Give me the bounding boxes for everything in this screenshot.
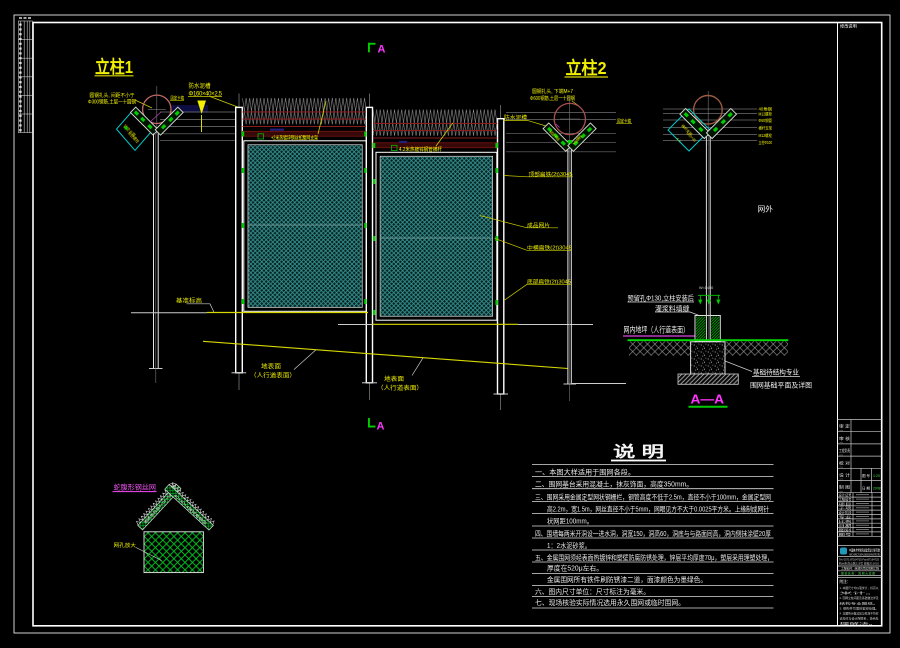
svg-text:+2米热镀锌钢丝蛇腹网支架: +2米热镀锌钢丝蛇腹网支架 xyxy=(271,133,319,141)
svg-text:附注：: 附注： xyxy=(840,579,851,584)
svg-text:厚度在520μ左右。: 厚度在520μ左右。 xyxy=(547,564,603,573)
svg-text:工程名称：西湖风景区围网工程: 工程名称：西湖风景区围网工程 xyxy=(841,566,879,571)
svg-text:Φ60钢管: Φ60钢管 xyxy=(759,117,773,124)
svg-text:灌浆料填缝: 灌浆料填缝 xyxy=(655,304,690,313)
svg-text:（人行道表面）: （人行道表面） xyxy=(377,384,423,392)
svg-text:预留孔Φ130,立柱安装后: 预留孔Φ130,立柱安装后 xyxy=(628,294,695,303)
svg-text:A: A xyxy=(378,44,386,56)
svg-text:图别: 图别 xyxy=(839,527,852,532)
svg-text:图纸名称：围网大样图: 图纸名称：围网大样图 xyxy=(841,571,875,576)
svg-text:审 核: 审 核 xyxy=(839,435,850,441)
svg-text:工程负责: 工程负责 xyxy=(839,447,850,453)
svg-text:图号: 图号 xyxy=(839,531,852,536)
svg-text:日期: 日期 xyxy=(862,486,870,491)
svg-text:立柱Φ100: 立柱Φ100 xyxy=(759,139,773,146)
svg-text:二、围网基台采用混凝土，抹灰饰面，高度350mm。: 二、围网基台采用混凝土，抹灰饰面，高度350mm。 xyxy=(535,479,693,488)
svg-text:四、围墙每两米开洞设一进水洞，洞宽150，洞高60，洞底与与: 四、围墙每两米开洞设一进水洞，洞宽150，洞高60，洞底与与路面同高，洞内侧抹涂… xyxy=(535,529,771,538)
svg-text:杭州市南山路218号 邮编310002: 杭州市南山路218号 邮编310002 xyxy=(839,561,880,565)
svg-text:（人行道表面）: （人行道表面） xyxy=(250,371,296,379)
svg-text:六、图内尺寸单位：尺寸标注为毫米。: 六、图内尺寸单位：尺寸标注为毫米。 xyxy=(535,587,650,596)
svg-text:请及时与设计院联系，协商处: 请及时与设计院联系，协商处 xyxy=(840,616,879,621)
svg-text:网孔放大: 网孔放大 xyxy=(114,542,137,549)
svg-text:专业: 专业 xyxy=(839,514,852,519)
svg-text:高2.2m，宽1.5m，网丝直径不小于5mm，网眼见方不大于: 高2.2m，宽1.5m，网丝直径不小于5mm，网眼见方不大于0.0025平方米。… xyxy=(547,504,769,513)
svg-text:日期: 日期 xyxy=(839,523,852,528)
svg-text:M12螺栓: M12螺栓 xyxy=(759,132,773,139)
svg-text:圆钢扎头, 间距不小于: 圆钢扎头, 间距不小于 xyxy=(90,91,135,99)
svg-text:M12螺栓: M12螺栓 xyxy=(759,111,773,118)
svg-text:Φ600钢筋,土层一十圆钢: Φ600钢筋,土层一十圆钢 xyxy=(530,94,575,102)
svg-text:3. 钢构件均需热镀锌处理。: 3. 钢构件均需热镀锌处理。 xyxy=(840,605,879,610)
svg-text:设 计: 设 计 xyxy=(839,472,850,478)
svg-text:五、金属围网须经表面热镀锌和塑壁防腐防锈处理，锌层平均厚度7: 五、金属围网须经表面热镀锌和塑壁防腐防锈处理，锌层平均厚度70μ，塑层采用理塑处… xyxy=(535,553,773,562)
svg-text:状网距100mm。: 状网距100mm。 xyxy=(547,516,593,525)
svg-text:A—A: A—A xyxy=(691,393,725,407)
svg-text:修改说明: 修改说明 xyxy=(840,23,857,30)
svg-text:防水泥槽: 防水泥槽 xyxy=(189,82,211,90)
svg-text:比例: 比例 xyxy=(839,518,852,523)
svg-text:说 明: 说 明 xyxy=(613,443,664,461)
svg-text:ARCHITECTURAL DESIGN INSTITUTE: ARCHITECTURAL DESIGN INSTITUTE xyxy=(849,553,880,556)
svg-text:设计阶段: 设计阶段 xyxy=(839,510,852,515)
svg-text:网内地坪（人行道表面）: 网内地坪（人行道表面） xyxy=(624,324,690,334)
svg-text:立柱2: 立柱2 xyxy=(566,58,607,78)
svg-text:W=1450: W=1450 xyxy=(699,286,713,290)
svg-text:1. 本图尺寸均以毫米计，标高以: 1. 本图尺寸均以毫米计，标高以 xyxy=(840,585,879,590)
svg-text:围网基础平面及详图: 围网基础平面及详图 xyxy=(750,381,812,390)
svg-text:地表面: 地表面 xyxy=(261,363,281,371)
svg-text:基础待结构专业: 基础待结构专业 xyxy=(753,368,799,377)
svg-text:圆钢扎头, 下端M+7: 圆钢扎头, 下端M+7 xyxy=(532,87,573,95)
svg-text:米计。: 米计。 xyxy=(840,590,879,595)
svg-text:理解决。: 理解决。 xyxy=(840,621,879,626)
svg-text:金属围网所有铁件刷防锈漆二道，面漆颜色为墨绿色。: 金属围网所有铁件刷防锈漆二道，面漆颜色为墨绿色。 xyxy=(547,575,707,584)
svg-text:地表面: 地表面 xyxy=(384,375,404,383)
svg-text:2. 围网立柱间距及基础做法详见: 2. 围网立柱间距及基础做法详见 xyxy=(840,595,879,600)
svg-text:一、本图大样适用于围网各段。: 一、本图大样适用于围网各段。 xyxy=(535,467,635,476)
svg-text:工程编号: 工程编号 xyxy=(839,496,852,501)
svg-text:图 号: 图 号 xyxy=(862,473,870,478)
svg-text:子项: 子项 xyxy=(839,505,852,510)
svg-text:Φ300钢筋,土层一十圆钢: Φ300钢筋,土层一十圆钢 xyxy=(88,98,136,106)
svg-text:中国美术学院风景建筑设计研究院: 中国美术学院风景建筑设计研究院 xyxy=(849,548,881,553)
svg-text:1：2水泥砂浆。: 1：2水泥砂浆。 xyxy=(547,541,591,550)
svg-text:1:20: 1:20 xyxy=(873,474,880,478)
svg-text:设计证号: 设计证号 xyxy=(839,492,852,497)
svg-text:网外: 网外 xyxy=(758,204,774,214)
svg-text:基准标高: 基准标高 xyxy=(176,297,203,305)
svg-text:审 定: 审 定 xyxy=(839,423,850,429)
svg-text:固定卡箍: 固定卡箍 xyxy=(617,117,631,124)
svg-text:立柱1: 立柱1 xyxy=(95,57,133,77)
svg-text:七、现场核验实际情况选用永久围网或临时围网。: 七、现场核验实际情况选用永久围网或临时围网。 xyxy=(535,598,685,607)
svg-text:Tel: 0571-87164725 Fax:8716472: Tel: 0571-87164725 Fax:87164725 xyxy=(839,558,880,562)
svg-text:防水泥槽: 防水泥槽 xyxy=(504,113,528,121)
svg-text:A: A xyxy=(377,421,385,433)
svg-text:三、围网采用金属定型网状钢栅栏，钢管高度不低于2.5m，直径: 三、围网采用金属定型网状钢栅栏，钢管高度不低于2.5m，直径不小于100mm，金… xyxy=(535,492,771,501)
svg-text:2008: 2008 xyxy=(873,487,881,491)
svg-text:4. 本图所示做法如与现场不符时: 4. 本图所示做法如与现场不符时 xyxy=(840,611,879,616)
svg-text:制 图: 制 图 xyxy=(839,484,850,490)
svg-text:校 对: 校 对 xyxy=(839,459,850,465)
svg-text:结构专业图纸。: 结构专业图纸。 xyxy=(840,600,879,605)
svg-text:横杆支架: 横杆支架 xyxy=(759,125,773,132)
svg-text:蛇腹形钢丝网: 蛇腹形钢丝网 xyxy=(114,483,157,492)
